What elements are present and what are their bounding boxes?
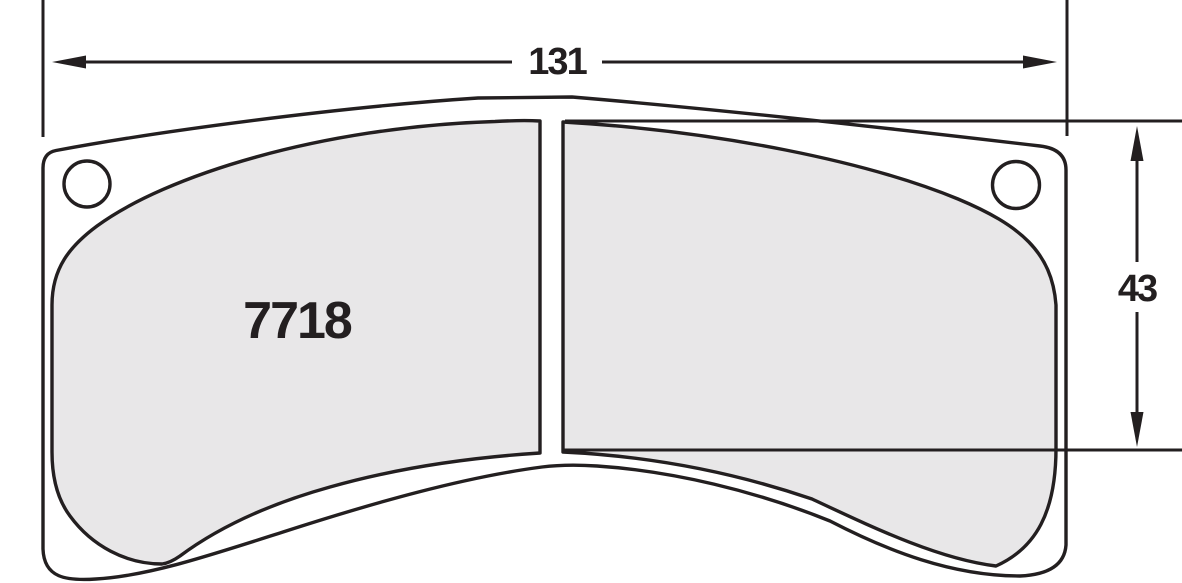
drawing-svg: 131 43 7718 [0,0,1182,583]
height-arrow-down [1131,412,1144,447]
width-dimension-label: 131 [528,41,587,83]
pad-geometry [43,97,1066,579]
part-number-label: 7718 [243,292,352,350]
brake-pad-dimension-drawing: 131 43 7718 [0,0,1182,583]
mounting-hole-left [64,161,110,207]
mounting-hole-right [993,162,1040,209]
height-dimension-label: 43 [1118,268,1157,310]
width-arrow-left [52,56,86,69]
height-arrow-up [1131,126,1144,161]
width-arrow-right [1023,56,1057,69]
